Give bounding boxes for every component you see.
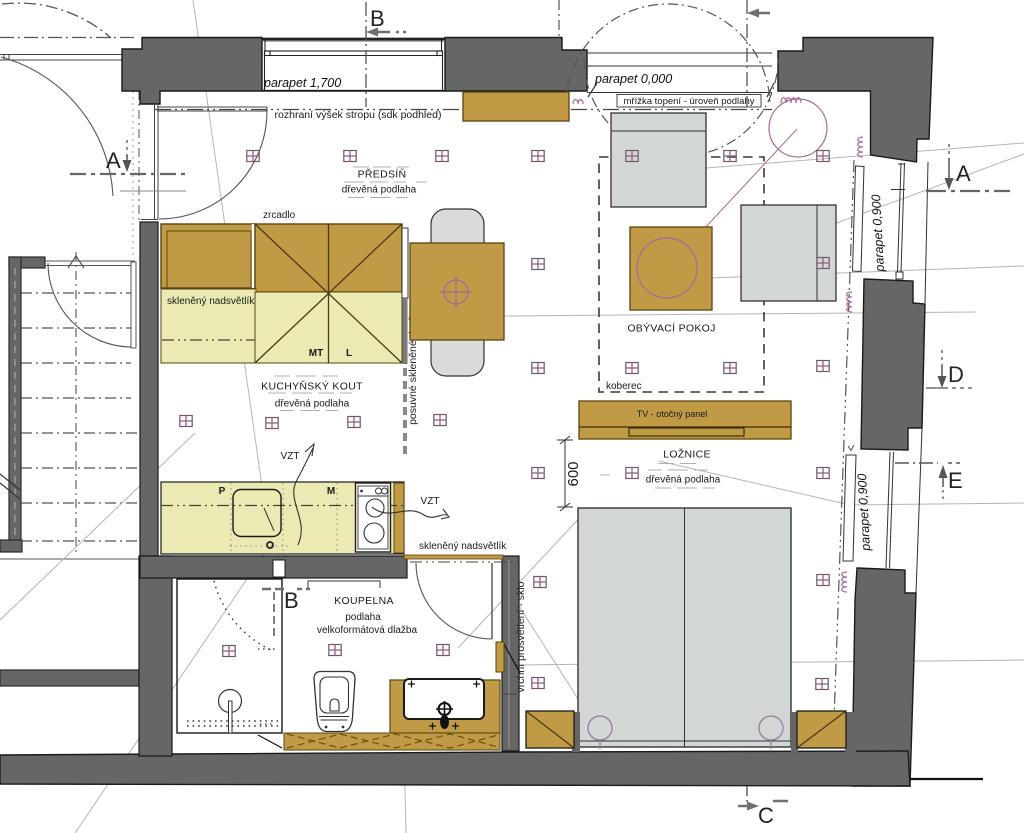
svg-text:zrcadlo: zrcadlo	[263, 210, 296, 221]
svg-text:dřevěná podlaha: dřevěná podlaha	[342, 185, 417, 196]
svg-text:LOŽNICE: LOŽNICE	[663, 448, 711, 461]
svg-text:dřevěná podlaha: dřevěná podlaha	[275, 399, 350, 410]
svg-text:PŘEDSÍŇ: PŘEDSÍŇ	[358, 168, 407, 181]
svg-text:VZT: VZT	[421, 496, 440, 507]
svg-text:velkoformátová dlažba: velkoformátová dlažba	[317, 625, 417, 636]
svg-text:E: E	[948, 468, 963, 493]
svg-text:parapet 1,700: parapet 1,700	[263, 76, 341, 90]
svg-text:koberec: koberec	[606, 381, 642, 392]
svg-text:dřevěná podlaha: dřevěná podlaha	[646, 475, 721, 486]
svg-text:C: C	[758, 803, 774, 828]
svg-text:M: M	[327, 486, 335, 497]
svg-text:parapet 0,000: parapet 0,000	[594, 72, 672, 86]
svg-text:MT: MT	[309, 348, 323, 359]
svg-text:A: A	[956, 161, 971, 186]
svg-text:B: B	[370, 6, 385, 31]
svg-text:skleněný nadsvětlík: skleněný nadsvětlík	[167, 296, 255, 307]
svg-text:P: P	[219, 486, 226, 497]
svg-text:OBÝVACÍ POKOJ: OBÝVACÍ POKOJ	[627, 322, 715, 335]
svg-text:600: 600	[565, 461, 582, 486]
svg-text:D: D	[948, 362, 964, 387]
svg-text:VZT: VZT	[281, 451, 300, 462]
svg-text:rozhraní výšek stropu (sdk pod: rozhraní výšek stropu (sdk podhled)	[275, 109, 442, 121]
svg-text:skleněný nadsvětlík: skleněný nadsvětlík	[419, 541, 507, 552]
svg-text:B: B	[284, 588, 299, 613]
svg-text:vrchní prosvětlení - sklo: vrchní prosvětlení - sklo	[515, 581, 527, 692]
svg-text:KUCHYŇSKÝ KOUT: KUCHYŇSKÝ KOUT	[261, 380, 363, 393]
svg-text:TV - otočný panel: TV - otočný panel	[637, 409, 708, 419]
svg-text:mřížka topení - úroveň podlahy: mřížka topení - úroveň podlahy	[624, 96, 755, 107]
svg-text:L: L	[346, 348, 352, 359]
svg-text:podlaha: podlaha	[345, 612, 381, 623]
svg-text:A: A	[106, 148, 121, 173]
svg-text:KOUPELNA: KOUPELNA	[334, 595, 394, 607]
